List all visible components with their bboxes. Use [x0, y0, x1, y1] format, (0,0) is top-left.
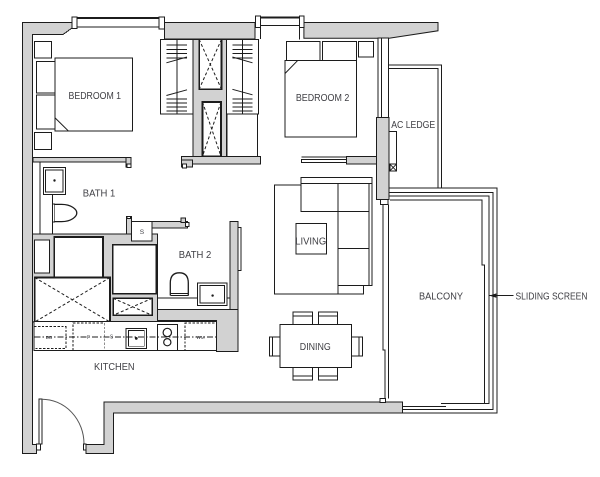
svg-text:DINING: DINING: [300, 342, 331, 353]
svg-text:BEDROOM 2: BEDROOM 2: [296, 93, 350, 104]
svg-text:BATH 2: BATH 2: [179, 250, 212, 261]
svg-text:AC LEDGE: AC LEDGE: [391, 120, 435, 131]
svg-text:DB: DB: [46, 335, 53, 341]
svg-text:SLIDING SCREEN: SLIDING SCREEN: [516, 291, 588, 302]
svg-text:WM: WM: [196, 335, 204, 340]
svg-text:BEDROOM 1: BEDROOM 1: [69, 91, 122, 102]
svg-text:LIVING: LIVING: [295, 237, 326, 248]
svg-text:BALCONY: BALCONY: [419, 292, 463, 303]
svg-text:KITCHEN: KITCHEN: [94, 362, 135, 373]
svg-text:F: F: [87, 335, 90, 341]
svg-text:BATH 1: BATH 1: [83, 189, 116, 200]
svg-text:S: S: [140, 229, 145, 236]
